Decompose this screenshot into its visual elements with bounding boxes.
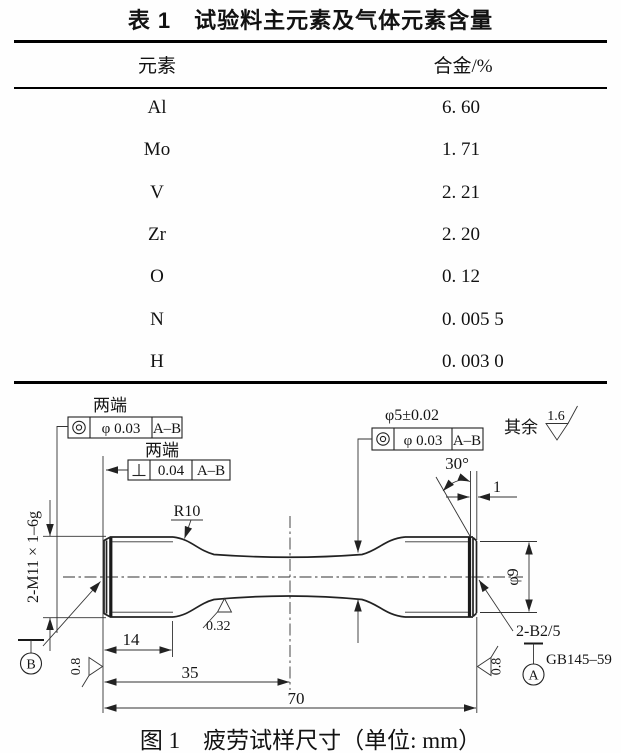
table-row: H 0. 003 0 <box>0 341 621 383</box>
concentricity-icon <box>73 421 85 433</box>
element-cell: Mo <box>107 129 207 171</box>
right-end-roughness: 0.8 <box>478 646 505 676</box>
table-top-rule <box>14 40 607 43</box>
tolerance-frame-concentricity-left: 两端 φ 0.03 A–B <box>57 396 182 633</box>
element-cell: Al <box>107 87 207 129</box>
datum-b-label: B <box>26 658 35 673</box>
both-ends-note: 两端 <box>93 396 127 415</box>
document-page: 表 1 试验料主元素及气体元素含量 元素 合金/% Al 6. 60 Mo 1.… <box>0 0 621 753</box>
tolerance-frame-perpendicularity: 两端 0.04 A–B <box>106 441 230 480</box>
general-surface-finish: 其余 1.6 <box>504 406 578 440</box>
value-cell: 1. 71 <box>442 129 592 171</box>
perpendicularity-icon <box>133 464 146 476</box>
specimen-drawing: 两端 φ 0.03 A–B 两端 0.04 A–B <box>0 384 621 722</box>
thread-spec: 2-M11 × 1–6g <box>25 511 42 603</box>
datum-reference: A–B <box>197 463 225 479</box>
thread-dimension: 2-M11 × 1–6g <box>25 500 106 651</box>
datum-reference: A–B <box>153 421 181 437</box>
gauge-diameter-label: φ5±0.02 <box>385 407 439 424</box>
both-ends-note: 两端 <box>145 441 179 460</box>
gauge-roughness: 0.32 <box>203 599 232 635</box>
element-cell: V <box>107 172 207 214</box>
table-title: 表 1 试验料主元素及气体元素含量 <box>0 3 621 35</box>
tolerance-value: φ 0.03 <box>404 433 443 449</box>
half-length: 35 <box>182 663 199 682</box>
value-cell: 2. 20 <box>442 214 592 256</box>
table-row: Zr 2. 20 <box>0 214 621 256</box>
figure-caption: 图 1 疲劳试样尺寸（单位: mm） <box>0 721 621 753</box>
roughness-value: 0.8 <box>490 658 505 676</box>
value-cell: 2. 21 <box>442 172 592 214</box>
tolerance-frame-concentricity-gauge: φ5±0.02 φ 0.03 A–B <box>358 407 483 643</box>
roughness-value: 1.6 <box>547 409 565 424</box>
grip-length: 14 <box>123 630 141 649</box>
fillet-radius: R10 <box>174 503 201 520</box>
center-hole-spec: 2-B2/5 <box>516 623 560 640</box>
value-cell: 0. 005 5 <box>442 299 592 341</box>
table-row: Mo 1. 71 <box>0 129 621 171</box>
tolerance-value: φ 0.03 <box>102 421 141 437</box>
roughness-value: 0.8 <box>69 658 84 676</box>
table-row: Al 6. 60 <box>0 87 621 129</box>
column-header-content: 合金/% <box>408 48 518 86</box>
elsewhere-note: 其余 <box>504 418 538 437</box>
table-row: V 2. 21 <box>0 172 621 214</box>
value-cell: 6. 60 <box>442 87 592 129</box>
roughness-value: 0.32 <box>206 619 231 634</box>
value-cell: 0. 12 <box>442 256 592 298</box>
center-hole-standard: GB145–59 <box>546 652 612 668</box>
chamfer-angle: 30° <box>445 454 469 473</box>
tolerance-value: 0.04 <box>158 463 185 479</box>
left-end-roughness: 0.8 <box>69 658 103 688</box>
value-cell: 0. 003 0 <box>442 341 592 383</box>
element-cell: N <box>107 299 207 341</box>
datum-reference: A–B <box>453 433 481 449</box>
roughness-icon <box>82 658 103 688</box>
end-diameter: φ9 <box>505 568 522 585</box>
column-header-element: 元素 <box>107 48 207 86</box>
fillet-callout: R10 <box>171 503 203 539</box>
chamfer-callout: 30° 1 <box>436 454 517 540</box>
concentricity-icon <box>377 433 389 445</box>
datum-a-label: A <box>528 669 539 684</box>
element-cell: H <box>107 341 207 383</box>
chamfer-length: 1 <box>493 479 501 496</box>
table-row: N 0. 005 5 <box>0 299 621 341</box>
element-cell: Zr <box>107 214 207 256</box>
element-cell: O <box>107 256 207 298</box>
total-length: 70 <box>288 689 305 708</box>
table-row: O 0. 12 <box>0 256 621 298</box>
